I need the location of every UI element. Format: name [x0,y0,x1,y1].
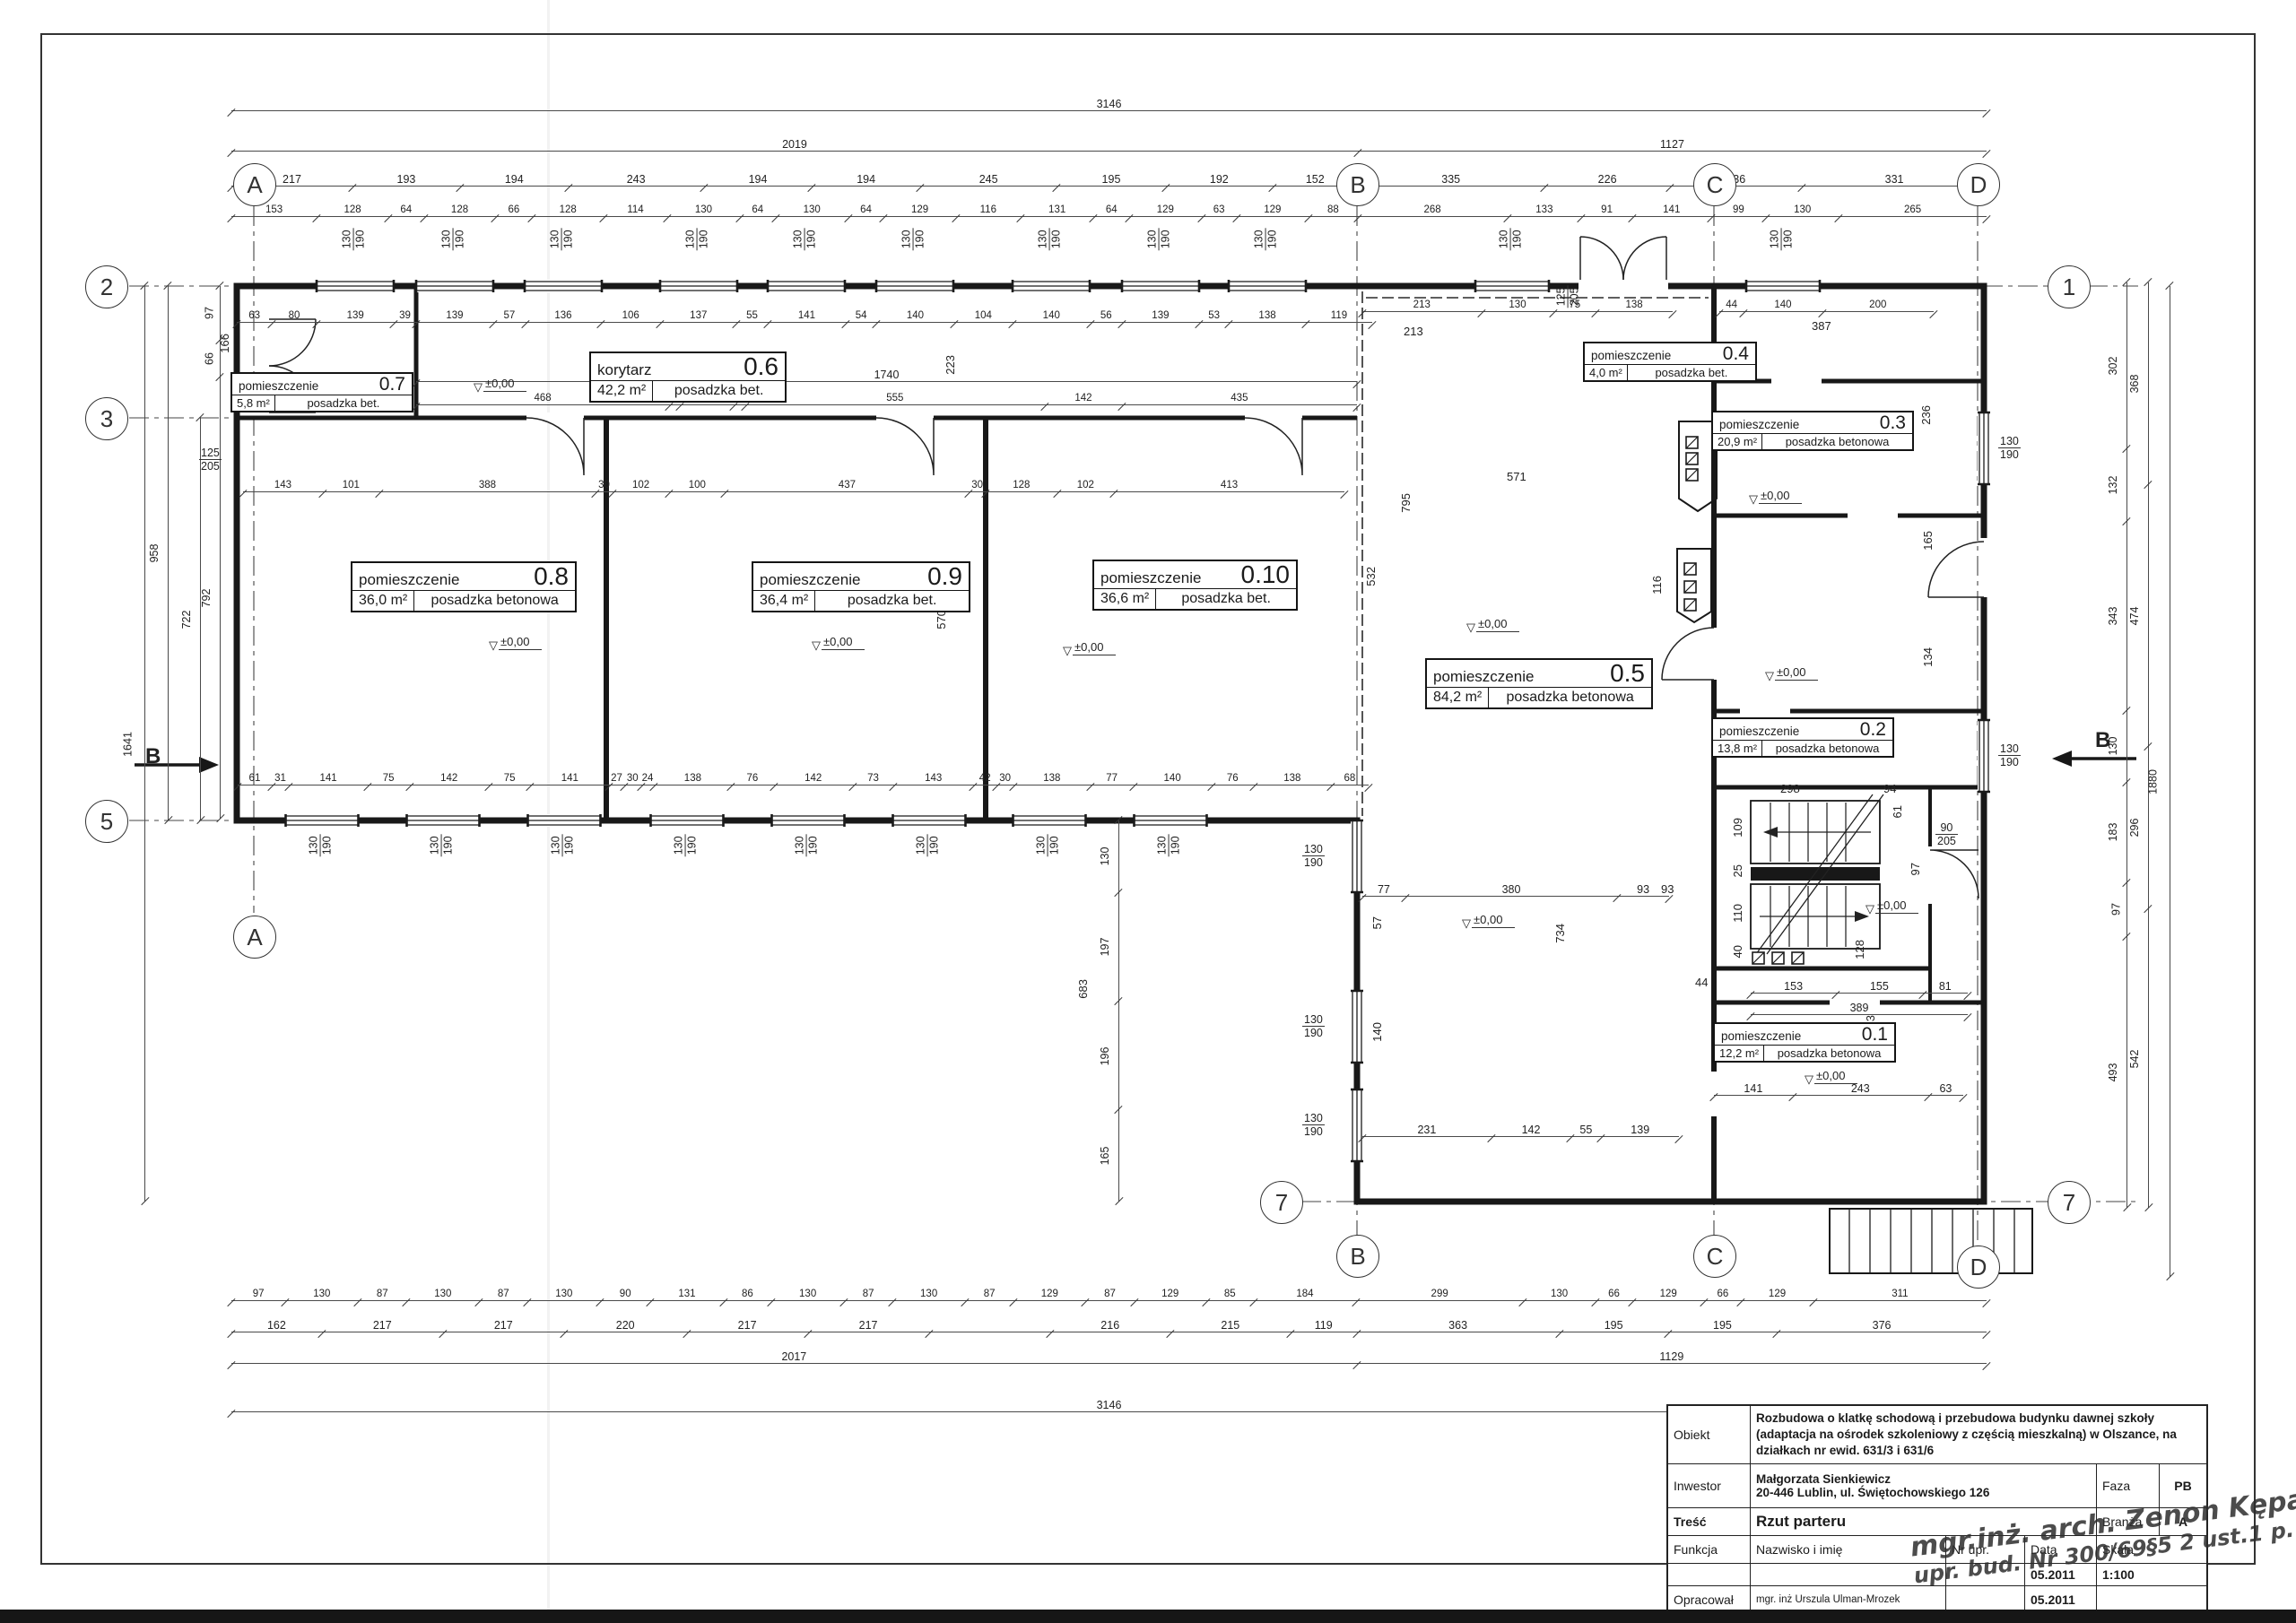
window-width: 130 [1769,230,1781,248]
room-floor: posadzka bet. [1156,589,1296,609]
dim-segment: 142 [1045,391,1122,405]
inwestor-name: Małgorzata Sienkiewicz [1756,1472,2091,1486]
window-size-label: 130190 [1302,843,1325,870]
level-value: ±0,00 [1759,489,1802,504]
dim-segment: 437 [725,478,969,492]
interior-dim: 109 [1731,818,1744,838]
dim-segment: 2017 [231,1350,1357,1364]
room-name: pomieszczenie [760,571,860,589]
empty-cell [1751,1564,1946,1585]
branza-label: Branża [2097,1508,2160,1535]
room-label-0.2: pomieszczenie0.2 13,8 m²posadzka betonow… [1711,717,1894,758]
interior-dim: 734 [1553,924,1567,943]
window-size-label: 130190 [1037,228,1064,250]
dim-segment: 142 [774,771,853,785]
door-width: 125 [1555,287,1568,306]
dim-segment: 722 [187,418,201,820]
title-row-mid: 05.2011 1:100 [1668,1564,2206,1586]
dim-chain-hall-bottom: 23114255139 [1362,1123,1679,1137]
dim-segment: 140 [1013,308,1091,323]
room-name: pomieszczenie [1721,1029,1801,1043]
dim-segment: 435 [1122,391,1357,405]
room-floor: posadzka betonowa [1762,434,1912,449]
room-number: 0.10 [1241,562,1291,587]
window-height: 190 [1302,855,1325,869]
window-size-label: 130190 [1156,834,1183,856]
room-floor: posadzka betonowa [414,591,575,611]
window-size-label: 130190 [1253,228,1280,250]
interior-dim: 387 [1812,319,1831,333]
dim-segment: 101 [323,478,379,492]
window-width: 130 [792,230,804,248]
window-width: 130 [550,836,562,855]
room-floor: posadzka betonowa [1489,688,1651,707]
window-height: 190 [1998,447,2021,461]
dim-segment: 196 [1105,1002,1119,1110]
section-label-left: B [145,744,161,769]
dim-segment: 129 [1013,1287,1085,1301]
interior-dim: 44 [1695,976,1708,989]
window-width: 130 [308,836,320,855]
floor-plan-sheet: 3146 20191127 21719319424319419424519519… [0,0,2296,1623]
interior-dim: 140 [1370,1022,1384,1042]
title-row-headers: Funkcja Nazwisko i imię Nr upr. Data Ska… [1668,1536,2206,1564]
level-marker: ▽±0,00 [812,635,865,650]
dim-segment: 87 [479,1287,527,1301]
dim-segment: 143 [893,771,973,785]
dim-segment: 142 [410,771,489,785]
level-triangle-icon: ▽ [1749,493,1758,505]
window-height: 190 [1265,228,1279,250]
dim-chain-wall-top-interior: 6380139391395713610613755141541401041405… [237,308,1372,323]
room-area: 84,2 m² [1427,688,1489,707]
axis-bubble-A-top: A [233,163,276,206]
window-width: 130 [1146,230,1159,248]
dim-segment: 184 [1254,1287,1356,1301]
date-bottom: 05.2011 [2025,1586,2097,1612]
faza-label: Faza [2097,1464,2160,1507]
dim-segment: 195 [1560,1318,1668,1332]
axis-bubble-D-top: D [1957,163,2000,206]
dim-chain-rooms-top: 1431013883010210043730128102413 [243,478,1344,492]
room-label-0.5: pomieszczenie0.5 84,2 m²posadzka betonow… [1425,658,1653,709]
level-triangle-icon: ▽ [1865,903,1874,915]
dim-segment: 61 [238,771,272,785]
dim-segment: 139 [317,308,394,323]
dim-segment: 1641 [131,286,145,1202]
dim-segment: 220 [564,1318,687,1332]
dim-segment: 130 [406,1287,479,1301]
room-number: 0.8 [534,564,569,589]
axis-bubble-7-left: 7 [1260,1181,1303,1224]
interior-dim: 213 [1404,325,1423,338]
dim-segment: 130 [892,1287,965,1301]
window-size-label: 130190 [1769,228,1796,250]
dim-segment: 958 [154,286,169,820]
axis-bubble-C-bottom: C [1693,1235,1736,1278]
dim-segment: 194 [460,172,569,187]
window-width: 130 [673,836,685,855]
opracowal-name: mgr. inż Urszula Ulman-Mrozek [1751,1586,1946,1612]
dim-segment: 217 [808,1318,929,1332]
dim-segment: 30 [624,771,641,785]
dim-segment: 1127 [1358,137,1987,152]
dim-segment: 44 [1719,298,1744,312]
dim-segment: 1740 [416,368,1357,382]
room-area: 36,4 m² [753,591,815,611]
dim-segment: 87 [1085,1287,1134,1301]
room-name: pomieszczenie [359,571,459,589]
axis-bubble-B-top: B [1336,163,1379,206]
interior-dim: 94 [1883,782,1896,795]
room-label-0.8: pomieszczenie0.8 36,0 m²posadzka betonow… [351,561,577,612]
window-height: 190 [320,834,334,856]
interior-dim: 93 [1661,882,1674,896]
dim-segment: 128 [317,203,388,217]
interior-dim: 166 [218,334,231,353]
window-height: 190 [1049,228,1063,250]
obiekt-label: Obiekt [1668,1406,1751,1463]
interior-dim: 223 [944,355,957,375]
dim-segment: 245 [920,172,1057,187]
dim-segment: 128 [424,203,496,217]
dim-chain-bottom-2: 162217217220217217216215119363195195376 [231,1318,1987,1332]
interior-dim: 40 [1731,945,1744,958]
window-width: 130 [440,230,453,248]
axis-bubble-A-left-bottom: A [233,916,276,959]
window-height: 190 [441,834,455,856]
axis-bubble-2-left: 2 [85,265,128,308]
level-value: ±0,00 [1775,665,1818,681]
window-width: 130 [684,230,697,248]
axis-bubble-B-bottom: B [1336,1235,1379,1278]
dim-segment: 97 [206,286,221,340]
room-label-0.9: pomieszczenie0.9 36,4 m²posadzka bet. [752,561,970,612]
dim-segment: 55 [736,308,767,323]
dim-segment: 130 [285,1287,358,1301]
dim-segment: 75 [489,771,531,785]
empty-cell [1668,1564,1751,1585]
dim-segment: 87 [965,1287,1013,1301]
level-value: ±0,00 [1814,1069,1857,1084]
inwestor-address: 20-446 Lublin, ul. Świętochowskiego 126 [1756,1486,2091,1499]
dim-chain-right-1: 30213234313018397493 [2113,282,2127,1208]
dim-segment: 265 [1839,203,1987,217]
window-width: 130 [794,836,806,855]
branza-value: A [2160,1508,2206,1535]
room-name: pomieszczenie [1433,668,1534,686]
window-width: 130 [1035,836,1048,855]
dim-segment: 102 [1057,478,1114,492]
dim-chain-right-total: 1880 [2156,286,2170,1277]
dim-segment: 143 [243,478,323,492]
dim-segment: 388 [379,478,596,492]
level-triangle-icon: ▽ [1765,670,1774,681]
dim-segment: 80 [272,308,317,323]
dim-segment: 77 [1362,882,1405,897]
title-row-opracowal: Opracował mgr. inż Urszula Ulman-Mrozek … [1668,1586,2206,1612]
nrupr-label: Nr upr. [1946,1536,2025,1563]
room-label-0.7: pomieszczenie0.7 5,8 m²posadzka bet. [230,372,413,412]
window-width: 130 [549,230,561,248]
dim-segment: 42 [973,771,996,785]
level-value: ±0,00 [1073,640,1116,655]
room-number: 0.3 [1880,413,1906,432]
window-height: 190 [353,228,367,250]
title-row-inwestor: Inwestor Małgorzata Sienkiewicz 20-446 L… [1668,1464,2206,1508]
door-size-label: 90205 [1935,821,1958,848]
room-name: pomieszczenie [1591,349,1671,362]
window-size-label: 130190 [429,834,456,856]
funkcja-label: Funkcja [1668,1536,1751,1563]
interior-dim: 57 [1370,916,1384,929]
dim-segment: 139 [416,308,493,323]
dim-segment [929,1318,1050,1332]
window-height: 190 [913,228,926,250]
dim-segment: 129 [1135,1287,1206,1301]
room-number: 0.1 [1862,1025,1888,1044]
room-area: 36,0 m² [352,591,414,611]
dim-segment: 138 [1229,308,1306,323]
window-size-label: 130190 [915,834,942,856]
dim-segment: 39 [394,308,415,323]
dim-segment: 215 [1170,1318,1291,1332]
window-size-label: 130190 [440,228,467,250]
room-name: pomieszczenie [239,379,318,393]
level-value: ±0,00 [1476,617,1519,632]
dim-segment: 132 [2113,449,2127,522]
dim-segment: 130 [1523,1287,1596,1301]
level-triangle-icon: ▽ [1063,645,1072,656]
dim-segment: 64 [848,203,884,217]
dim-segment: 131 [1021,203,1094,217]
dim-segment: 130 [527,1287,600,1301]
dim-segment: 194 [812,172,920,187]
room-area: 12,2 m² [1715,1046,1764,1061]
door-height: 205 [1568,285,1581,308]
dim-segment: 140 [876,308,954,323]
level-triangle-icon: ▽ [1466,621,1475,633]
dim-segment: 102 [613,478,669,492]
room-number: 0.5 [1610,661,1645,686]
dim-segment: 114 [604,203,667,217]
dim-segment: 141 [768,308,847,323]
window-size-label: 130190 [1302,1112,1325,1139]
window-width: 130 [2000,742,2019,755]
window-width: 130 [915,836,927,855]
window-width: 130 [900,230,913,248]
window-height: 190 [1159,228,1172,250]
dim-chain-top-total: 3146 [231,97,1987,111]
dim-segment: 64 [1093,203,1129,217]
level-value: ±0,00 [499,635,542,650]
window-height: 190 [1302,1124,1325,1138]
dim-segment: 130 [2113,710,2127,782]
tresc-value: Rzut parteru [1751,1508,2097,1535]
dim-segment: 142 [1492,1123,1570,1137]
empty-cell [1946,1586,2025,1612]
dim-segment: 75 [368,771,410,785]
dim-segment: 1880 [2156,286,2170,1277]
dim-segment: 200 [1822,298,1934,312]
room-number: 0.7 [379,375,405,394]
dim-segment: 192 [1166,172,1273,187]
dim-segment: 193 [352,172,460,187]
dim-segment: 53 [1199,308,1229,323]
dim-chain-left-3: 722 [187,418,201,820]
dim-segment: 130 [667,203,740,217]
window-width: 130 [2000,435,2019,447]
window-size-label: 130190 [1035,834,1062,856]
dim-chain-mid-left: 130197196165 [1105,820,1119,1202]
interior-dim: 25 [1731,864,1744,877]
window-height: 190 [1048,834,1061,856]
dim-chain-rooms-bottom: 6131141751427514127302413876142731434230… [238,771,1369,785]
dim-segment: 137 [660,308,736,323]
room-area: 4,0 m² [1585,365,1628,380]
interior-dim: 795 [1399,493,1413,513]
axis-bubble-C-top: C [1693,163,1736,206]
level-value: ±0,00 [483,377,526,392]
dim-segment: 213 [1362,298,1482,312]
dim-segment: 56 [1091,308,1122,323]
dim-segment: 138 [654,771,731,785]
dim-segment: 63 [1928,1081,1963,1096]
dim-segment: 2019 [231,137,1358,152]
dim-chain-stair-2: 389 [1751,1001,1968,1015]
door-size-label: 125205 [1555,285,1582,308]
room-area: 36,6 m² [1094,589,1156,609]
room-floor: posadzka bet. [275,395,412,411]
dim-segment: 197 [1105,892,1119,1002]
dim-segment: 299 [1356,1287,1523,1301]
dim-segment: 86 [724,1287,772,1301]
dim-segment: 57 [493,308,525,323]
section-label-right: B [2095,728,2110,753]
dim-segment: 81 [1923,979,1968,994]
date-mid: 05.2011 [2025,1564,2097,1585]
window-size-label: 130190 [1998,742,2021,769]
axis-bubble-D-bottom: D [1957,1245,2000,1289]
dim-chain-hall-mid: 7738093 [1362,882,1669,897]
window-size-label: 130190 [549,228,576,250]
room-floor: posadzka betonowa [1764,1046,1894,1061]
level-value: ±0,00 [1472,913,1515,928]
dim-segment: 226 [1544,172,1671,187]
dim-segment: 165 [1105,1110,1119,1202]
dim-segment: 66 [1596,1287,1632,1301]
dim-segment: 139 [1122,308,1199,323]
dim-segment: 195 [1057,172,1165,187]
dim-segment: 302 [2113,282,2127,449]
dim-segment: 131 [650,1287,723,1301]
dim-segment: 128 [532,203,604,217]
level-marker: ▽±0,00 [1063,640,1116,655]
dim-segment: 493 [2113,936,2127,1208]
axis-bubble-7-right: 7 [2048,1181,2091,1224]
level-marker: ▽±0,00 [489,635,542,650]
dim-segment: 343 [2113,522,2127,711]
dim-segment: 76 [1212,771,1254,785]
room-label-0.4: pomieszczenie0.4 4,0 m²posadzka bet. [1583,342,1757,382]
level-triangle-icon: ▽ [474,381,483,393]
dim-segment: 133 [1508,203,1582,217]
inwestor-label: Inwestor [1668,1464,1751,1507]
dim-segment: 97 [231,1287,285,1301]
dim-chain-wing-top: 44140200 [1719,298,1934,312]
dim-segment: 217 [687,1318,808,1332]
dim-chain-top-2: 20191127 [231,137,1987,152]
dim-segment: 141 [1632,203,1711,217]
interior-dim: 134 [1921,647,1935,667]
dim-segment: 792 [206,377,221,819]
skala-label: Skala [2097,1536,2206,1563]
room-label-0.3: pomieszczenie0.3 20,9 m²posadzka betonow… [1711,411,1914,451]
level-triangle-icon: ▽ [1805,1073,1813,1085]
opracowal-label: Opracował [1668,1586,1751,1612]
tresc-label: Treść [1668,1508,1751,1535]
dim-segment: 77 [1091,771,1134,785]
window-height: 190 [1510,228,1524,250]
dim-segment: 66 [495,203,532,217]
faza-value: PB [2160,1464,2206,1507]
interior-dim: 570 [935,610,948,629]
dim-chain-corridor-total: 1740 [416,368,1357,382]
skala-value: 1:100 [2097,1564,2206,1585]
window-size-label: 130190 [1302,1013,1325,1040]
dim-segment: 130 [771,1287,844,1301]
scan-edge-artifact [0,1610,2296,1623]
dim-segment: 363 [1357,1318,1560,1332]
window-height: 190 [1781,228,1795,250]
axis-bubble-5-left: 5 [85,800,128,843]
dim-segment: 162 [231,1318,322,1332]
room-number: 0.6 [744,354,778,379]
room-name: pomieszczenie [1719,418,1799,431]
dim-segment: 54 [846,308,876,323]
dim-segment: 129 [1237,203,1309,217]
interior-dim: 571 [1507,470,1526,483]
dim-segment: 3146 [231,97,1987,111]
room-area: 13,8 m² [1713,741,1762,756]
dim-segment: 542 [2135,909,2149,1208]
dim-chain-left-4: 9766792 [206,286,221,819]
dim-segment: 73 [853,771,893,785]
dim-chain-left-total: 1641 [131,286,145,1202]
window-size-label: 130190 [792,228,819,250]
window-width: 130 [1156,836,1169,855]
window-height: 190 [697,228,710,250]
window-width: 130 [429,836,441,855]
window-height: 190 [685,834,699,856]
level-marker: ▽±0,00 [1805,1069,1857,1084]
title-row-tresc: Treść Rzut parteru Branża A [1668,1508,2206,1536]
room-area: 20,9 m² [1713,434,1762,449]
title-row-obiekt: Obiekt Rozbudowa o klatkę schodową i prz… [1668,1406,2206,1464]
interior-dim: 116 [1650,576,1664,595]
interior-dim: 683 [1076,979,1090,999]
dim-chain-left-2: 958 [154,286,169,820]
room-area: 42,2 m² [591,381,653,401]
dim-segment: 63 [237,308,272,323]
dim-segment: 183 [2113,782,2127,882]
interior-dim: 110 [1731,904,1744,923]
dim-segment: 76 [731,771,773,785]
interior-dim: 165 [1921,531,1935,551]
window-height: 190 [562,834,576,856]
dim-chain-stair-1: 15315581 [1751,979,1968,994]
dim-segment: 30 [969,478,986,492]
